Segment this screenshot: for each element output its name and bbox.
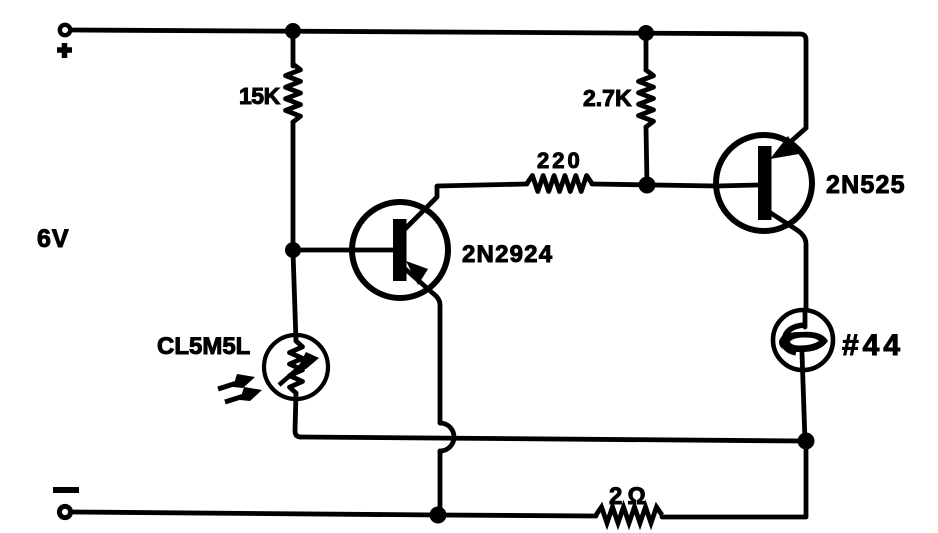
svg-text:2N2924: 2N2924 — [462, 241, 553, 268]
svg-text:#44: #44 — [842, 329, 904, 362]
svg-text:15K: 15K — [239, 83, 281, 109]
svg-text:220: 220 — [537, 148, 583, 173]
svg-text:6V: 6V — [37, 225, 70, 253]
svg-text:CL5M5L: CL5M5L — [157, 333, 250, 360]
svg-text:2N525: 2N525 — [826, 171, 906, 199]
svg-text:2.7K: 2.7K — [583, 85, 632, 111]
